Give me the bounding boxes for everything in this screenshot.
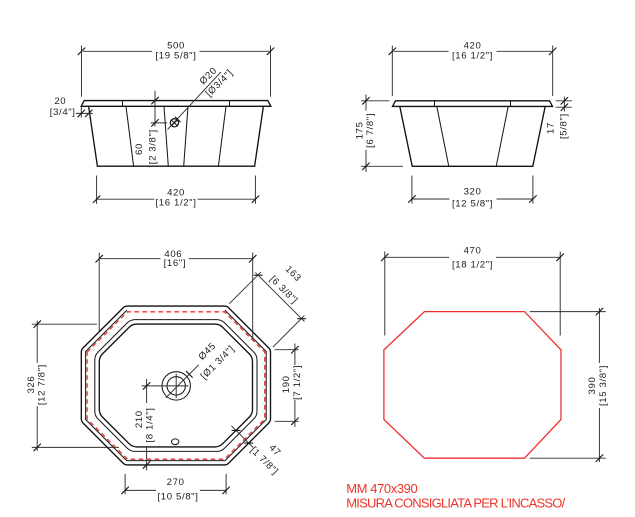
svg-text:175: 175 xyxy=(355,121,366,139)
svg-text:[2 3/8"]: [2 3/8"] xyxy=(148,129,159,164)
svg-text:163: 163 xyxy=(283,264,303,284)
svg-text:270: 270 xyxy=(167,477,185,488)
svg-text:390: 390 xyxy=(587,377,598,395)
svg-text:[16"]: [16"] xyxy=(164,258,187,269)
svg-text:[18 1/2"]: [18 1/2"] xyxy=(452,259,493,270)
svg-text:60: 60 xyxy=(134,143,145,155)
svg-text:[5/8"]: [5/8"] xyxy=(559,113,570,139)
svg-text:MM 470x390: MM 470x390 xyxy=(346,481,417,496)
svg-text:320: 320 xyxy=(464,186,482,197)
svg-text:17: 17 xyxy=(546,122,557,134)
svg-text:[3/4"]: [3/4"] xyxy=(50,107,76,118)
svg-text:[10 5/8"]: [10 5/8"] xyxy=(158,492,199,503)
svg-text:[6 7/8"]: [6 7/8"] xyxy=(365,113,376,148)
svg-text:[16 1/2"]: [16 1/2"] xyxy=(452,50,493,61)
svg-text:47: 47 xyxy=(266,442,282,458)
svg-text:326: 326 xyxy=(26,376,37,394)
svg-text:190: 190 xyxy=(281,375,292,393)
svg-text:[15 3/8"]: [15 3/8"] xyxy=(598,365,609,406)
svg-text:MISURA CONSIGLIATA PER L’INCAS: MISURA CONSIGLIATA PER L’INCASSO/ xyxy=(346,496,565,511)
svg-text:210: 210 xyxy=(134,410,145,428)
svg-text:[12 5/8"]: [12 5/8"] xyxy=(452,198,493,209)
svg-text:[12 7/8"]: [12 7/8"] xyxy=(37,364,48,405)
svg-text:[16 1/2"]: [16 1/2"] xyxy=(156,197,197,208)
svg-text:470: 470 xyxy=(464,246,482,257)
svg-text:[19 5/8"]: [19 5/8"] xyxy=(156,50,197,61)
svg-text:20: 20 xyxy=(54,96,66,107)
svg-text:[8 1/4"]: [8 1/4"] xyxy=(145,407,156,442)
svg-text:[7 1/2"]: [7 1/2"] xyxy=(292,365,303,400)
